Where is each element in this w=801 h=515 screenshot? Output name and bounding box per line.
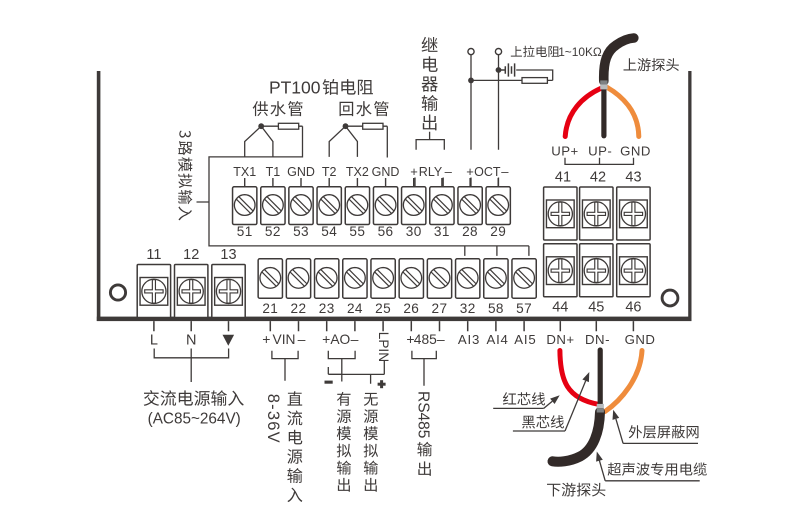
svg-text:45: 45 (588, 300, 604, 316)
svg-text:29: 29 (490, 224, 506, 239)
svg-text:AI4: AI4 (486, 332, 508, 347)
svg-text:OCT: OCT (474, 165, 501, 179)
svg-text:56: 56 (378, 224, 394, 239)
svg-text:T2: T2 (322, 165, 337, 179)
svg-text:13: 13 (220, 247, 236, 263)
svg-text:DN+: DN+ (546, 332, 574, 347)
svg-text:L: L (150, 333, 158, 349)
svg-text:AI5: AI5 (514, 332, 536, 347)
svg-text:21: 21 (262, 301, 278, 316)
svg-text:24: 24 (347, 301, 363, 316)
svg-text:54: 54 (321, 224, 337, 239)
svg-text:8-36V: 8-36V (264, 394, 282, 444)
svg-text:32: 32 (460, 301, 476, 316)
svg-text:31: 31 (434, 224, 450, 239)
svg-text:PT100: PT100 (269, 78, 321, 98)
svg-text:–: – (351, 331, 359, 347)
svg-text:VIN: VIN (273, 332, 296, 347)
svg-text:42: 42 (590, 170, 606, 186)
svg-text:22: 22 (291, 301, 307, 316)
svg-text:LPIN: LPIN (376, 332, 391, 362)
svg-text:+: + (262, 331, 270, 347)
svg-text:UP-: UP- (588, 144, 612, 159)
svg-text:TX2: TX2 (346, 165, 369, 179)
svg-text:58: 58 (488, 301, 504, 316)
svg-text:RS485: RS485 (414, 391, 431, 438)
svg-text:30: 30 (406, 224, 422, 239)
svg-text:51: 51 (237, 224, 253, 239)
svg-text:44: 44 (552, 300, 568, 316)
svg-text:57: 57 (516, 301, 532, 316)
svg-text:28: 28 (462, 224, 478, 239)
svg-text:GND: GND (372, 165, 400, 179)
svg-text:+: + (322, 331, 330, 347)
svg-text:(AC85~264V): (AC85~264V) (148, 411, 241, 428)
svg-text:46: 46 (625, 300, 641, 316)
svg-text:–: – (445, 164, 453, 179)
svg-text:53: 53 (293, 224, 309, 239)
svg-text:–: – (298, 331, 306, 347)
svg-text:+: + (410, 164, 418, 179)
svg-text:AO: AO (330, 332, 350, 347)
svg-text:11: 11 (146, 247, 161, 263)
svg-text:GND: GND (625, 332, 656, 347)
svg-text:GND: GND (620, 144, 651, 159)
svg-text:TX1: TX1 (233, 165, 256, 179)
svg-text:41: 41 (555, 170, 571, 186)
svg-text:+: + (466, 164, 474, 179)
svg-text:55: 55 (349, 224, 365, 239)
svg-text:25: 25 (375, 301, 391, 316)
svg-text:1~10KΩ: 1~10KΩ (558, 45, 602, 59)
svg-text:GND: GND (287, 165, 315, 179)
svg-text:–: – (501, 164, 509, 179)
svg-text:26: 26 (403, 301, 419, 316)
svg-text:UP+: UP+ (551, 144, 579, 159)
svg-text:N: N (186, 333, 196, 349)
svg-text:485: 485 (414, 332, 437, 347)
svg-text:DN-: DN- (585, 332, 610, 347)
svg-text:T1: T1 (266, 165, 281, 179)
svg-text:52: 52 (265, 224, 281, 239)
svg-text:12: 12 (183, 247, 199, 263)
svg-text:–: – (437, 331, 445, 347)
svg-text:23: 23 (319, 301, 335, 316)
svg-text:AI3: AI3 (458, 332, 480, 347)
svg-text:27: 27 (432, 301, 448, 316)
svg-text:43: 43 (625, 170, 641, 186)
svg-text:RLY: RLY (419, 165, 443, 179)
